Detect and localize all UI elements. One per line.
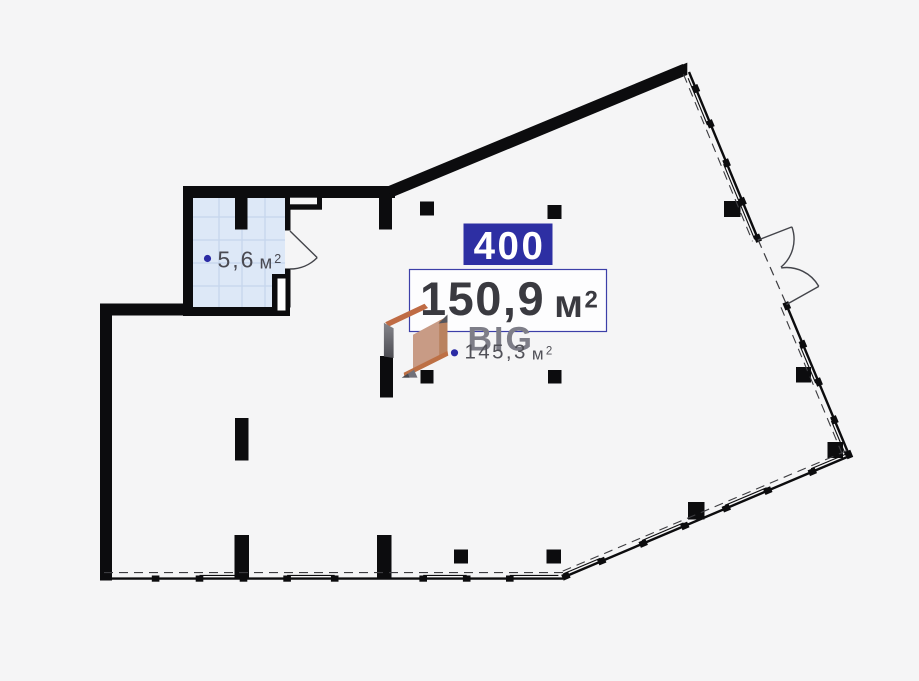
svg-text:145,3м2: 145,3м2 [465, 341, 555, 364]
svg-text:400: 400 [474, 225, 546, 268]
